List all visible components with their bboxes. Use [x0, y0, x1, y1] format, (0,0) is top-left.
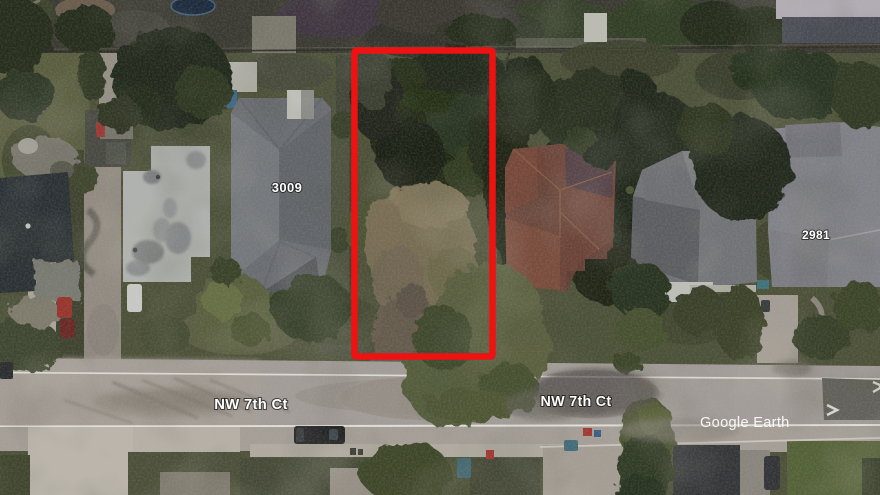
svg-text:NW 7th Ct: NW 7th Ct: [214, 397, 287, 413]
svg-text:2981: 2981: [802, 228, 830, 242]
svg-text:3009: 3009: [272, 180, 303, 195]
svg-text:NW 7th Ct: NW 7th Ct: [541, 394, 612, 410]
svg-text:Google Earth: Google Earth: [700, 415, 790, 431]
